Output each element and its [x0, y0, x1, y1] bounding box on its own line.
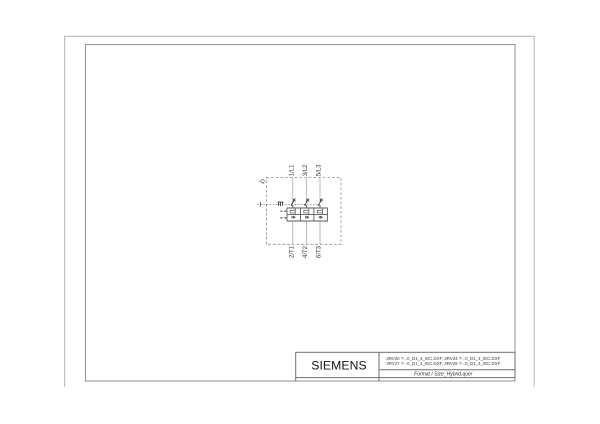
svg-text:SIEMENS: SIEMENS	[311, 359, 367, 373]
svg-text:2/T1: 2/T1	[289, 245, 295, 258]
svg-text:4/T2: 4/T2	[303, 245, 309, 258]
svg-text:5/L3: 5/L3	[317, 164, 323, 176]
svg-text:6/T3: 6/T3	[317, 245, 323, 258]
svg-text:Format / Size_Hybrid.quer: Format / Size_Hybrid.quer	[414, 372, 473, 378]
svg-text:1/L1: 1/L1	[289, 164, 295, 176]
svg-text:-Q: -Q	[259, 179, 266, 185]
svg-text:3/L2: 3/L2	[303, 164, 309, 176]
svg-text:3RV27 ?-..0_D1_4_IEC.DXF, 3RV2: 3RV27 ?-..0_D1_4_IEC.DXF, 3RV28 ?-..0_D1…	[386, 361, 500, 366]
